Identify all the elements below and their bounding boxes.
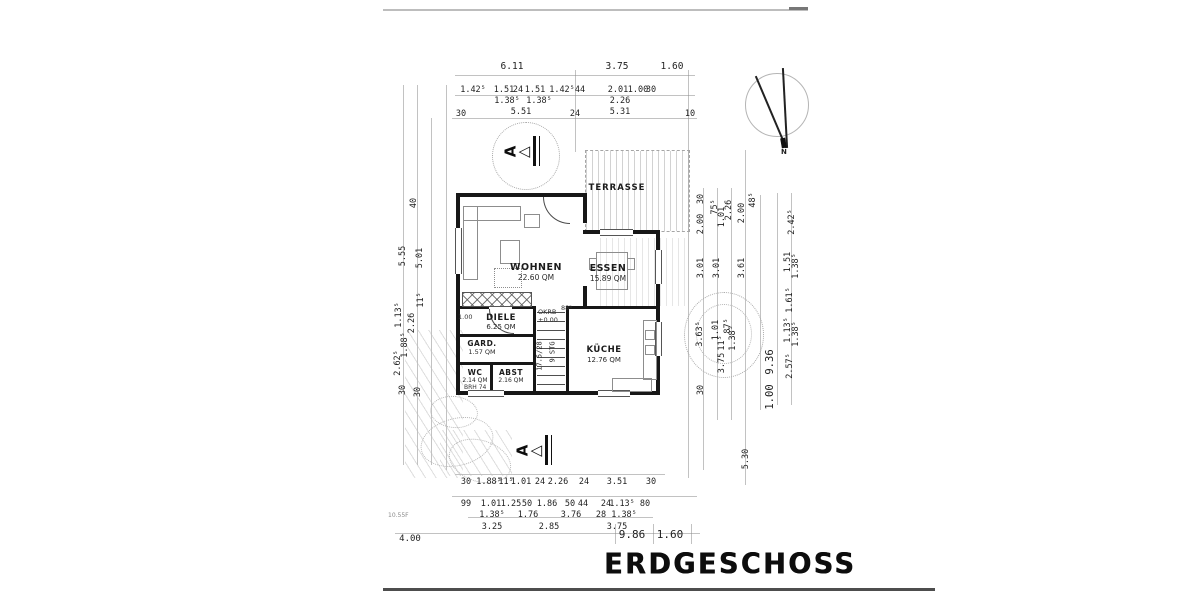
dim-top-total: 6.11 [501, 62, 524, 72]
dim-top: 1.51 [494, 86, 514, 95]
stair-count-label: 9 STG [550, 341, 557, 362]
dim-bottom: 30 [461, 478, 471, 487]
dim-bottom-sub: 3.76 [561, 511, 581, 520]
scan-edge-bottom [383, 588, 935, 591]
dim-line [777, 193, 778, 405]
dim-right: 2.42⁵ [788, 209, 797, 235]
section-letter: A [503, 145, 518, 157]
dim-left: 1.13⁵ [395, 302, 404, 328]
dim-line [760, 195, 761, 410]
dim-bottom: 1.86 [537, 500, 557, 509]
dim-line [455, 95, 695, 96]
dim-top-low: 5.51 [511, 108, 531, 117]
dim-bottom: 24 [579, 478, 589, 487]
dim-bottom-sub: 1.38⁵ [611, 511, 637, 520]
room-label-gard: GARD. [467, 339, 496, 348]
dim-right: 1.38⁵ [792, 321, 801, 347]
wall-segment [566, 306, 658, 309]
section-cut-line [545, 435, 548, 465]
window [600, 229, 633, 236]
dim-right: 11⁵ [718, 335, 727, 350]
dim-line [403, 85, 404, 465]
dim-left: 30 [399, 385, 408, 395]
dim-bottom-sub: 1.76 [518, 511, 538, 520]
dim-tick [691, 524, 692, 544]
wardrobe [462, 292, 532, 307]
dim-bottom-sub: 1.38⁵ [479, 511, 505, 520]
wall-segment [583, 286, 587, 308]
wall-segment [458, 334, 534, 337]
room-label-abst: ABST [499, 368, 523, 377]
section-cut-line [533, 136, 536, 166]
dim-top-sub: 1.38⁵ [494, 97, 520, 106]
dim-bottom-total: 9.86 [619, 529, 646, 540]
dim-line [395, 533, 700, 534]
dim-line [452, 496, 697, 497]
coffee-table [500, 240, 520, 264]
dim-top-sub: 2.26 [610, 97, 630, 106]
dim-right: 9.36 [765, 349, 776, 374]
dim-right: 48⁵ [749, 192, 758, 207]
dim-right: 2.00 [697, 214, 706, 234]
wall-segment [566, 306, 569, 395]
room-label-wc: WC [468, 368, 483, 377]
dim-top-low: 10 [685, 110, 695, 119]
section-letter: A [515, 444, 530, 456]
dim-right: 2.00 [738, 203, 747, 223]
dim-right: 30 [697, 385, 706, 395]
dim-top: 30 [646, 86, 656, 95]
section-marker-a-top: A ◁ [505, 136, 540, 166]
dim-line [688, 70, 689, 478]
dim-bottom: 50 [522, 500, 532, 509]
dim-bottom: 1.01 [511, 478, 531, 487]
dim-right: 1.38⁵ [792, 253, 801, 279]
page-title: ERDGESCHOSS [604, 548, 856, 581]
faint-scan-note: 10.55F [388, 512, 409, 519]
dim-line [455, 75, 695, 76]
dim-top-low: 5.31 [610, 108, 630, 117]
dim-top: 1.42⁵ [549, 86, 575, 95]
scan-edge-top [383, 9, 808, 11]
dim-top: 44 [575, 86, 585, 95]
room-area-diele: 6.25 QM [486, 323, 515, 331]
wall-segment [458, 362, 534, 365]
dim-bottom-total: 1.60 [657, 529, 684, 540]
dim-bottom: 80 [640, 500, 650, 509]
window [455, 228, 462, 274]
wall-dim-note: 1.00 [458, 313, 472, 321]
room-label-diele: DIELE [486, 313, 516, 323]
dim-right: 1.00 [765, 384, 776, 409]
scan-edge-top-dash [789, 7, 808, 10]
sofa [463, 206, 521, 221]
dim-bottom-sub: 28 [596, 511, 606, 520]
room-note-wc: BRH 74 [464, 384, 486, 391]
room-area-wohnen: 22.60 QM [518, 273, 554, 282]
dim-right: 3.63⁵ [696, 321, 705, 347]
kitchen-sink [645, 330, 655, 340]
dim-right: 1.61⁵ [786, 287, 795, 313]
window [468, 390, 504, 397]
dim-left: 11⁵ [417, 292, 426, 307]
section-marker-a-bottom: A ◁ [517, 435, 552, 465]
dim-right: 3.01 [713, 258, 722, 278]
dim-left: 30 [414, 387, 423, 397]
dim-top: 24 [513, 86, 523, 95]
dim-right: 3.61 [738, 258, 747, 278]
dim-bottom: 1.01 [481, 500, 501, 509]
dim-bottom: 24 [535, 478, 545, 487]
dim-bottom: 99 [461, 500, 471, 509]
dim-right: 30 [697, 194, 706, 204]
room-area-abst: 2.16 QM [498, 377, 523, 384]
level-value: ±0.00 [538, 316, 558, 324]
dim-bottom: 1.25 [501, 500, 521, 509]
room-area-kueche: 12.76 QM [587, 356, 621, 364]
north-label: N [781, 148, 787, 156]
dim-bottom: 1.13⁵ [609, 500, 635, 509]
room-area-gard: 1.57 QM [468, 348, 495, 356]
dim-bottom: 2.26 [548, 478, 568, 487]
dim-top-sub: 1.38⁵ [526, 97, 552, 106]
chair [627, 258, 635, 270]
dim-bottom-sub2: 2.85 [539, 523, 559, 532]
dim-top-total: 3.75 [606, 62, 629, 72]
room-area-wc: 2.14 QM [462, 377, 487, 384]
kitchen-stove [645, 345, 655, 355]
floor-plan-sheet: 9 STG 17.5/28 TERRASSE WOHNEN 22.60 QM E… [0, 0, 1200, 600]
dim-bottom-total: 4.00 [399, 535, 421, 544]
dim-left: 5.55 [399, 246, 408, 266]
dim-top-low: 30 [456, 110, 466, 119]
kitchen-counter [612, 378, 652, 392]
section-cut-line [539, 136, 541, 166]
door-swing [543, 197, 570, 224]
dim-bottom: 3.51 [607, 478, 627, 487]
section-triangle-icon: ◁ [531, 443, 543, 458]
room-label-wohnen: WOHNEN [510, 262, 562, 273]
dim-bottom: 50 [565, 500, 575, 509]
dim-bottom: 44 [578, 500, 588, 509]
window [655, 250, 662, 284]
room-label-kueche: KÜCHE [587, 345, 622, 355]
dim-top: 1.42⁵ [460, 86, 486, 95]
wall-segment [583, 193, 587, 223]
wall-segment [490, 364, 493, 392]
dim-bottom: 30 [646, 478, 656, 487]
dim-top-low: 24 [570, 110, 580, 119]
room-label-essen: ESSEN [590, 263, 627, 274]
door-width-note: 88⁵ [561, 304, 572, 312]
slope-hatching [440, 430, 512, 476]
dim-right: 2.57⁵ [786, 353, 795, 379]
dim-right: 3.01 [697, 258, 706, 278]
level-label: OKRB [538, 308, 556, 316]
dim-left: 5.01 [416, 248, 425, 268]
stair-ratio-label: 17.5/28 [537, 341, 544, 371]
dim-top: 1.51 [525, 86, 545, 95]
section-cut-line [551, 435, 553, 465]
room-area-essen: 15.89 QM [590, 274, 626, 283]
dim-left: 2.62⁵ [394, 350, 403, 376]
dim-right: 1.38⁵ [729, 325, 738, 351]
dim-right: 3.75 [718, 353, 727, 373]
room-label-terrasse: TERRASSE [589, 183, 646, 193]
section-triangle-icon: ◁ [519, 144, 531, 159]
dim-left: 40 [410, 198, 419, 208]
dim-bottom-sub2: 3.25 [482, 523, 502, 532]
dim-right: 2.26 [725, 200, 734, 220]
dim-top-total: 1.60 [661, 62, 684, 72]
dim-top: 2.01 [608, 86, 628, 95]
dim-left: 2.26 [408, 313, 417, 333]
armchair [524, 214, 540, 228]
dim-tick [653, 524, 654, 544]
dim-right: 5.30 [742, 449, 751, 469]
